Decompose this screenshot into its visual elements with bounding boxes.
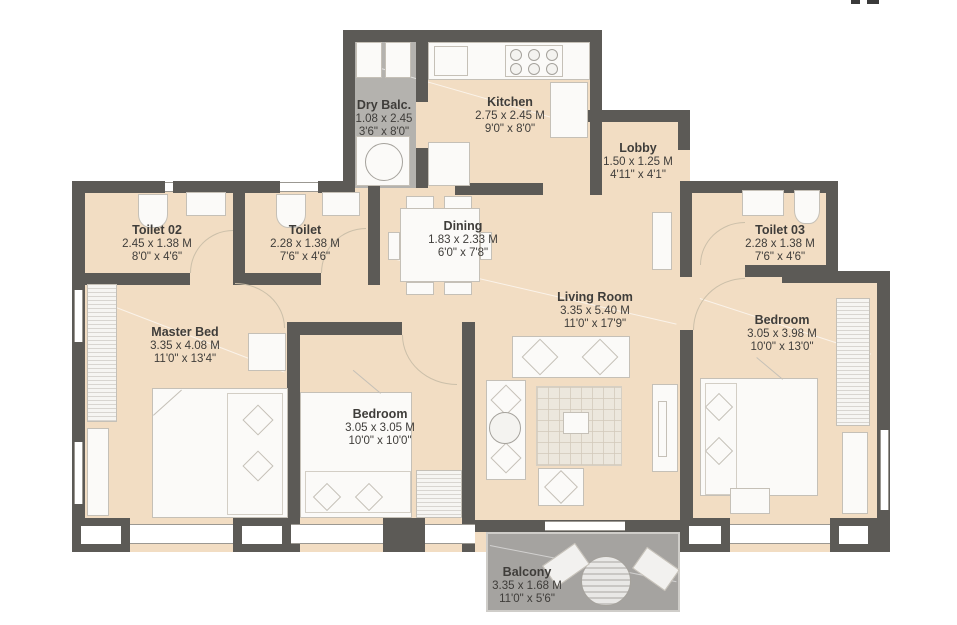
room-name: Dining: [398, 220, 528, 234]
coffee-table-icon: [563, 412, 589, 434]
wall: [585, 110, 690, 122]
vent-window: [280, 182, 318, 192]
room-name: Kitchen: [430, 96, 590, 110]
window: [880, 430, 889, 510]
armchair-icon: [538, 468, 584, 506]
washbasin-icon: [322, 192, 360, 216]
room-dims-metric: 3.35 x 5.40 M: [520, 305, 670, 319]
utility-sink-icon: [385, 42, 411, 78]
room-dims-imperial: 3'6" x 8'0": [338, 126, 430, 140]
room-name: Master Bed: [110, 326, 260, 340]
room-dims-imperial: 7'6" x 4'6": [705, 251, 855, 265]
room-dims-imperial: 8'0" x 4'6": [82, 251, 232, 265]
room-label-living-room: Living Room 3.35 x 5.40 M 11'0" x 17'9": [520, 291, 670, 332]
wall: [462, 322, 475, 552]
kitchen-unit-icon: [428, 142, 470, 186]
window-pillar: [233, 518, 291, 552]
kitchen-sink-icon: [434, 46, 468, 76]
crop-artifact-mark: [867, 0, 879, 4]
bed-icon: [700, 378, 818, 496]
room-name: Toilet 02: [82, 224, 232, 238]
room-dims-metric: 2.75 x 2.45 M: [430, 110, 590, 124]
room-dims-imperial: 9'0" x 8'0": [430, 123, 590, 137]
room-name: Lobby: [588, 142, 688, 156]
room-dims-metric: 3.05 x 3.05 M: [305, 422, 455, 436]
entry-door-icon: [652, 212, 672, 270]
window: [291, 524, 383, 544]
wall: [383, 518, 425, 552]
room-dims-imperial: 11'0" x 5'6": [462, 593, 592, 607]
room-label-toilet-02: Toilet 02 2.45 x 1.38 M 8'0" x 4'6": [82, 224, 232, 265]
room-label-toilet-03: Toilet 03 2.28 x 1.38 M 7'6" x 4'6": [705, 224, 855, 265]
vent-window: [165, 182, 173, 192]
dresser-icon: [842, 432, 868, 514]
toilet-wc-icon: [794, 190, 820, 224]
wall: [72, 181, 165, 193]
room-label-master-bed: Master Bed 3.35 x 4.08 M 11'0" x 13'4": [110, 326, 260, 367]
tv-unit-icon: [652, 384, 678, 472]
washbasin-icon: [742, 190, 784, 216]
room-dims-metric: 2.45 x 1.38 M: [82, 238, 232, 252]
washing-machine-icon: [356, 136, 410, 186]
room-name: Bedroom: [707, 314, 857, 328]
window: [425, 524, 475, 544]
wall: [343, 30, 602, 42]
room-dims-metric: 2.28 x 1.38 M: [705, 238, 855, 252]
wall: [287, 322, 402, 335]
room-dims-imperial: 11'0" x 13'4": [110, 353, 260, 367]
room-label-bedroom-mid: Bedroom 3.05 x 3.05 M 10'0" x 10'0": [305, 408, 455, 449]
room-dims-metric: 2.28 x 1.38 M: [240, 238, 370, 252]
room-dims-imperial: 10'0" x 10'0": [305, 435, 455, 449]
dining-chair-icon: [406, 282, 434, 295]
wall: [416, 148, 428, 188]
wall: [680, 181, 692, 277]
dining-chair-icon: [444, 282, 472, 295]
wardrobe-icon: [416, 470, 462, 518]
floor-plan: Dry Balc. 1.08 x 2.45 3'6" x 8'0" Kitche…: [0, 0, 957, 625]
room-dims-imperial: 6'0" x 7'8": [398, 247, 528, 261]
room-label-dining: Dining 1.83 x 2.33 M 6'0" x 7'8": [398, 220, 528, 261]
room-dims-metric: 1.50 x 1.25 M: [588, 156, 688, 170]
room-name: Living Room: [520, 291, 670, 305]
crop-artifact-mark: [851, 0, 860, 4]
window: [74, 442, 83, 504]
room-label-balcony: Balcony 3.35 x 1.68 M 11'0" x 5'6": [462, 566, 592, 607]
room-dims-metric: 3.35 x 4.08 M: [110, 340, 260, 354]
window: [74, 290, 83, 342]
room-label-dry-balc: Dry Balc. 1.08 x 2.45 3'6" x 8'0": [338, 99, 430, 140]
room-label-lobby: Lobby 1.50 x 1.25 M 4'11" x 4'1": [588, 142, 688, 183]
wall: [877, 518, 890, 552]
utility-sink-icon: [356, 42, 382, 78]
room-label-bedroom-right: Bedroom 3.05 x 3.98 M 10'0" x 13'0": [707, 314, 857, 355]
side-table-icon: [489, 412, 521, 444]
wall: [782, 271, 877, 283]
window: [130, 524, 233, 544]
bed-icon: [152, 388, 288, 518]
room-name: Bedroom: [305, 408, 455, 422]
wall: [416, 30, 428, 102]
sliding-door: [545, 521, 625, 531]
window: [730, 524, 830, 544]
room-label-toilet: Toilet 2.28 x 1.38 M 7'6" x 4'6": [240, 224, 370, 265]
room-dims-metric: 3.35 x 1.68 M: [462, 580, 592, 594]
room-dims-imperial: 7'6" x 4'6": [240, 251, 370, 265]
room-dims-imperial: 10'0" x 13'0": [707, 341, 857, 355]
room-name: Toilet 03: [705, 224, 855, 238]
room-name: Dry Balc.: [338, 99, 430, 113]
window-pillar: [72, 518, 130, 552]
room-label-kitchen: Kitchen 2.75 x 2.45 M 9'0" x 8'0": [430, 96, 590, 137]
room-name: Balcony: [462, 566, 592, 580]
dresser-icon: [87, 428, 109, 516]
bedside-table-icon: [730, 488, 770, 514]
room-dims-metric: 3.05 x 3.98 M: [707, 328, 857, 342]
sofa-icon: [512, 336, 630, 378]
room-dims-imperial: 11'0" x 17'9": [520, 318, 670, 332]
room-dims-imperial: 4'11" x 4'1": [588, 169, 688, 183]
room-name: Toilet: [240, 224, 370, 238]
room-dims-metric: 1.08 x 2.45: [338, 113, 430, 127]
window-pillar: [830, 518, 877, 552]
room-dims-metric: 1.83 x 2.33 M: [398, 234, 528, 248]
stove-icon: [505, 45, 563, 77]
window-pillar: [680, 518, 730, 552]
washbasin-icon: [186, 192, 226, 216]
